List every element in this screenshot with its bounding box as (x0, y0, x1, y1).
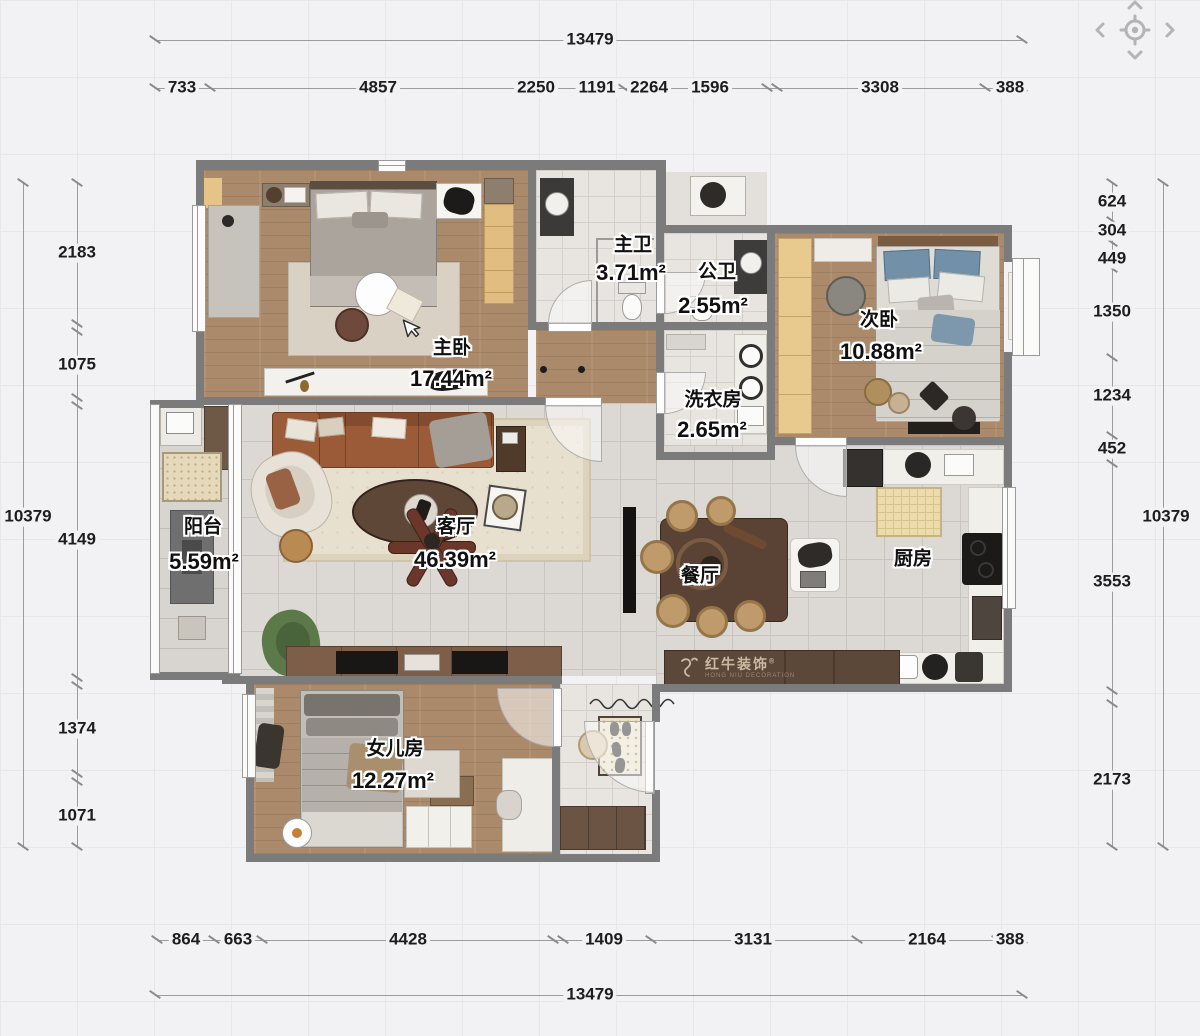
room-name-laundry: 洗衣房 (684, 385, 741, 412)
fridge (843, 449, 883, 487)
wall (1004, 352, 1012, 445)
dim-label: 1350 (1090, 303, 1134, 322)
watermark-subtitle: HONG NIU DECORATION (705, 673, 795, 679)
cushion (317, 417, 345, 438)
dining-chair (696, 606, 728, 638)
dim-label: 304 (1095, 222, 1129, 241)
dim-label: 4428 (386, 931, 430, 950)
dim-label: 2173 (1090, 771, 1134, 790)
pillow (304, 694, 400, 716)
dim-line (77, 182, 78, 846)
window (242, 694, 256, 778)
dim-label: 2250 (514, 79, 558, 98)
dim-label: 388 (993, 931, 1027, 950)
wall (1004, 225, 1012, 262)
dim-label: 3131 (731, 931, 775, 950)
dim-label: 2164 (905, 931, 949, 950)
dim-label: 1409 (582, 931, 626, 950)
downlight (578, 366, 585, 373)
decor (502, 432, 518, 444)
dim-label: 1596 (688, 79, 732, 98)
room-name-kitchen: 厨房 (894, 544, 932, 571)
dining-chair (706, 496, 736, 526)
bed-fold (302, 812, 402, 846)
wall (552, 676, 560, 688)
downlight (540, 366, 547, 373)
dim-label: 3308 (858, 79, 902, 98)
dim-label: 4149 (55, 531, 99, 550)
tv-partition (623, 507, 636, 613)
decor (300, 380, 309, 392)
pot (922, 654, 948, 680)
wall (528, 160, 536, 330)
room-name-balcony: 阳台 (184, 512, 222, 539)
dim-label: 4857 (356, 79, 400, 98)
plush-toy (888, 392, 910, 414)
decor (952, 406, 976, 430)
room-area-living-room: 46.39m² (414, 547, 496, 573)
dim-label: 1071 (55, 807, 99, 826)
balcony-railing (150, 404, 160, 674)
sink (740, 252, 762, 274)
decor (266, 187, 282, 203)
dryer (739, 376, 763, 400)
window (378, 160, 406, 172)
toilet (622, 294, 642, 320)
window (1002, 487, 1016, 609)
wall (845, 437, 1012, 445)
dim-label: 1191 (576, 79, 619, 98)
room-name-living-room: 客厅 (437, 512, 475, 539)
cursor-hand-icon (400, 316, 426, 342)
balcony-mat (162, 452, 222, 502)
pot (905, 452, 931, 478)
tv (336, 651, 398, 674)
closet (208, 205, 260, 318)
room-name-master-bath: 主卫 (614, 230, 652, 257)
cabinet (484, 178, 514, 204)
room-name-public-bath: 公卫 (698, 257, 736, 284)
tv (452, 651, 508, 674)
decor (284, 187, 306, 203)
wall (552, 745, 560, 862)
dim-label: 2264 (627, 79, 671, 98)
window (192, 205, 206, 332)
cabinet (406, 806, 472, 848)
dim-label: 10379 (1139, 508, 1192, 527)
throw-blanket (428, 411, 493, 468)
dining-chair (640, 540, 674, 574)
wall (656, 170, 666, 232)
wall (652, 692, 660, 722)
closet-decor (222, 215, 234, 227)
dim-label: 624 (1095, 193, 1129, 212)
sink (545, 192, 569, 216)
nav-pad (1093, 0, 1177, 64)
watermark-brand: 红牛装饰 (705, 656, 769, 672)
garland-decor (588, 694, 688, 712)
room-area-balcony: 5.59m² (169, 549, 239, 575)
dim-label: 1374 (55, 720, 99, 739)
dining-chair (656, 594, 690, 628)
dim-line (1112, 182, 1113, 846)
dim-label: 3553 (1090, 573, 1134, 592)
dim-label: 388 (993, 79, 1027, 98)
dim-label: 10379 (1, 508, 54, 527)
wall (652, 790, 660, 862)
cushion (371, 417, 406, 439)
wall (656, 225, 1012, 233)
room-area-master-bath: 3.71m² (596, 260, 666, 286)
wall (652, 684, 1012, 692)
room-name-daughter-room: 女儿房 (366, 734, 423, 761)
pan-down-icon[interactable] (1129, 52, 1141, 58)
stool (178, 616, 206, 640)
wall (196, 160, 666, 170)
shelf (972, 596, 1002, 640)
wall (656, 452, 775, 460)
water-heater (700, 182, 726, 208)
shelf (666, 334, 706, 350)
balc-sliding-door (228, 404, 242, 674)
room-name-second-bedroom: 次卧 (860, 305, 898, 332)
wall (767, 225, 775, 460)
dim-label: 864 (169, 931, 203, 950)
decor (292, 828, 302, 838)
room-name-dining: 餐厅 (681, 561, 719, 588)
appliance (955, 652, 983, 682)
washing-machine (739, 344, 763, 368)
dim-label: 1234 (1090, 387, 1134, 406)
room-area-daughter-room: 12.27m² (352, 768, 434, 794)
burner (970, 540, 986, 556)
bull-logo-icon (679, 657, 699, 679)
room-name-master-bedroom: 主卧 (433, 333, 471, 360)
media-device (404, 654, 440, 671)
room-area-public-bath: 2.55m² (678, 293, 748, 319)
room-area-laundry: 2.65m² (677, 417, 747, 443)
watermark-bar: 红牛装饰® HONG NIU DECORATION (664, 650, 900, 686)
sink (166, 412, 194, 434)
tablet (800, 571, 826, 588)
dim-label: 449 (1095, 250, 1129, 269)
dining-chair (666, 500, 698, 532)
pouf (335, 308, 369, 342)
desk (814, 238, 872, 262)
dim-label: 733 (165, 79, 199, 98)
wall (222, 676, 562, 684)
kitchen-mat (876, 487, 942, 537)
room-area-second-bedroom: 10.88m² (840, 339, 922, 365)
footstool (279, 529, 313, 563)
dim-label: 452 (1095, 440, 1129, 459)
cushion (285, 418, 317, 442)
dining-chair (734, 600, 766, 632)
pan-left-icon[interactable] (1097, 24, 1103, 36)
wardrobe (778, 238, 812, 434)
dim-label: 663 (221, 931, 255, 950)
registered-mark: ® (769, 658, 776, 665)
watermark-text: 红牛装饰® HONG NIU DECORATION (705, 657, 795, 679)
recenter-target-icon[interactable] (1121, 16, 1149, 44)
room-area-master-bedroom: 17.44m² (410, 366, 492, 392)
burner (978, 562, 994, 578)
pillow (352, 212, 388, 228)
dim-label: 13479 (563, 31, 616, 50)
dim-label: 2183 (55, 244, 99, 263)
pan-up-icon[interactable] (1129, 2, 1141, 8)
shelf-unit (484, 204, 514, 304)
wall (767, 437, 795, 445)
kitchen-sink (944, 454, 974, 476)
wall (196, 397, 545, 405)
bay-window (1012, 258, 1040, 356)
dim-label: 1075 (55, 356, 99, 375)
throw-blue (930, 313, 975, 347)
wall (246, 854, 660, 862)
pan-right-icon[interactable] (1167, 24, 1173, 36)
shoe-cabinet (560, 806, 646, 850)
dim-label: 13479 (563, 986, 616, 1005)
chair (496, 790, 522, 820)
